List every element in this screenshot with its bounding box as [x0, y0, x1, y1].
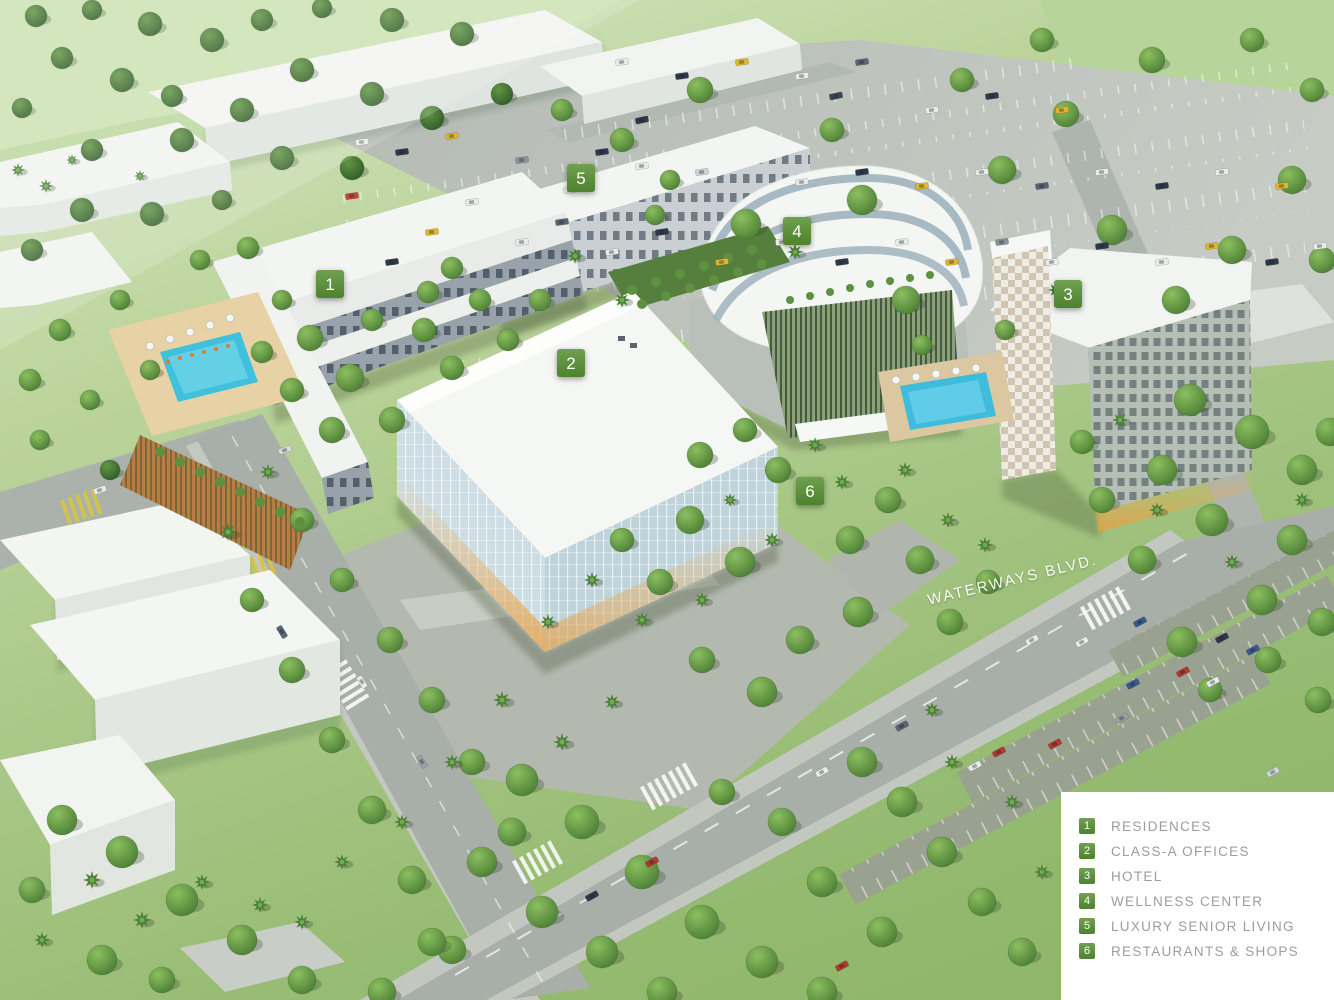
- building-marker-3: 3: [1054, 280, 1082, 308]
- legend-panel: 1 RESIDENCES 2 CLASS-A OFFICES 3 HOTEL 4…: [1061, 792, 1334, 1000]
- marker-number: 5: [576, 170, 585, 187]
- legend-item-label: HOTEL: [1111, 869, 1163, 884]
- building-marker-2: 2: [557, 349, 585, 377]
- building-marker-4: 4: [783, 217, 811, 245]
- marker-number: 4: [792, 223, 801, 240]
- legend-item-hotel: 3 HOTEL: [1079, 868, 1324, 884]
- legend-item-label: RESIDENCES: [1111, 819, 1212, 834]
- legend-number-badge: 1: [1079, 818, 1095, 834]
- legend-number-badge: 4: [1079, 893, 1095, 909]
- marker-number: 2: [566, 355, 575, 372]
- marker-number: 1: [325, 276, 334, 293]
- legend-item-residences: 1 RESIDENCES: [1079, 818, 1324, 834]
- legend-item-wellness: 4 WELLNESS CENTER: [1079, 893, 1324, 909]
- marker-number: 3: [1063, 286, 1072, 303]
- masterplan-aerial-rendering: 1 2 3 4 5 6 WATERWAYS BLVD. 1 RESIDENCES…: [0, 0, 1334, 1000]
- legend-item-label: LUXURY SENIOR LIVING: [1111, 919, 1295, 934]
- building-marker-6: 6: [796, 477, 824, 505]
- building-marker-5: 5: [567, 164, 595, 192]
- legend-item-label: RESTAURANTS & SHOPS: [1111, 944, 1299, 959]
- building-marker-1: 1: [316, 270, 344, 298]
- legend-item-offices: 2 CLASS-A OFFICES: [1079, 843, 1324, 859]
- marker-number: 6: [805, 483, 814, 500]
- legend-item-restaurants: 6 RESTAURANTS & SHOPS: [1079, 943, 1324, 959]
- legend-item-senior-living: 5 LUXURY SENIOR LIVING: [1079, 918, 1324, 934]
- legend-item-label: WELLNESS CENTER: [1111, 894, 1263, 909]
- legend-number-badge: 6: [1079, 943, 1095, 959]
- legend-number-badge: 2: [1079, 843, 1095, 859]
- legend-number-badge: 5: [1079, 918, 1095, 934]
- legend-item-label: CLASS-A OFFICES: [1111, 844, 1250, 859]
- legend-number-badge: 3: [1079, 868, 1095, 884]
